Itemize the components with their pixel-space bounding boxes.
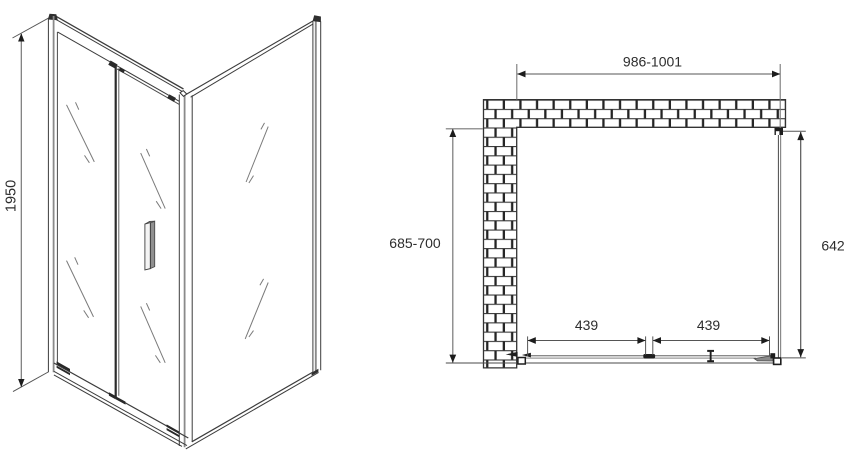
svg-text:1950: 1950: [4, 180, 20, 212]
svg-text:439: 439: [575, 317, 599, 333]
svg-text:642: 642: [821, 238, 845, 254]
svg-text:685-700: 685-700: [389, 235, 441, 251]
svg-text:986-1001: 986-1001: [623, 54, 682, 70]
svg-text:439: 439: [697, 317, 721, 333]
